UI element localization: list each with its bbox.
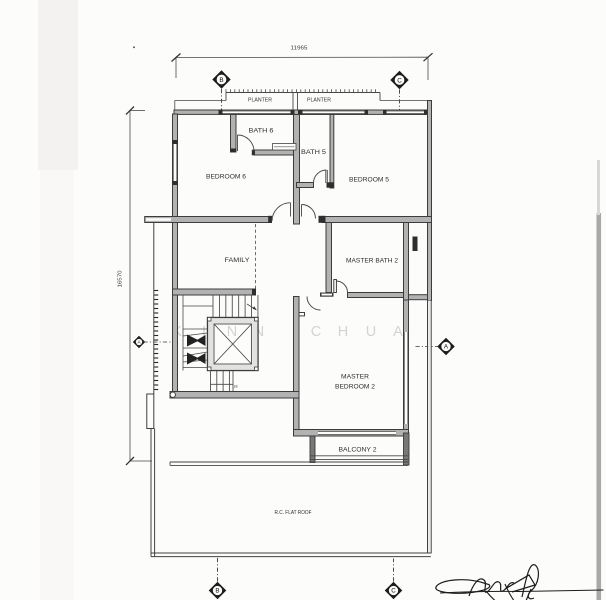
svg-text:A: A [393,324,403,340]
svg-text:MASTER BATH 2: MASTER BATH 2 [346,258,398,265]
svg-text:BATH 6: BATH 6 [249,127,274,134]
svg-text:PLANTER: PLANTER [248,97,272,103]
svg-text:H: H [338,324,348,340]
svg-text:BEDROOM 2: BEDROOM 2 [335,384,375,391]
svg-text:BALCONY 2: BALCONY 2 [339,447,377,454]
svg-text:C: C [397,77,402,84]
svg-text:R.C. FLAT ROOF: R.C. FLAT ROOF [275,510,312,516]
svg-text:BEDROOM 5: BEDROOM 5 [349,177,389,184]
svg-text:B: B [215,588,219,595]
svg-text:PLANTER: PLANTER [307,97,331,103]
svg-text:BEDROOM 6: BEDROOM 6 [206,174,246,181]
svg-text:C: C [391,588,396,595]
svg-text:16570: 16570 [118,271,124,288]
svg-text:N: N [227,324,237,340]
svg-text:B: B [219,77,223,84]
svg-text:MASTER: MASTER [341,374,369,381]
svg-text:BATH 5: BATH 5 [301,149,326,156]
svg-text:C: C [311,324,321,340]
svg-text:18: 18 [234,385,238,389]
svg-text:11965: 11965 [291,46,308,52]
svg-text:U: U [366,324,376,340]
svg-text:FAMILY: FAMILY [225,257,251,264]
